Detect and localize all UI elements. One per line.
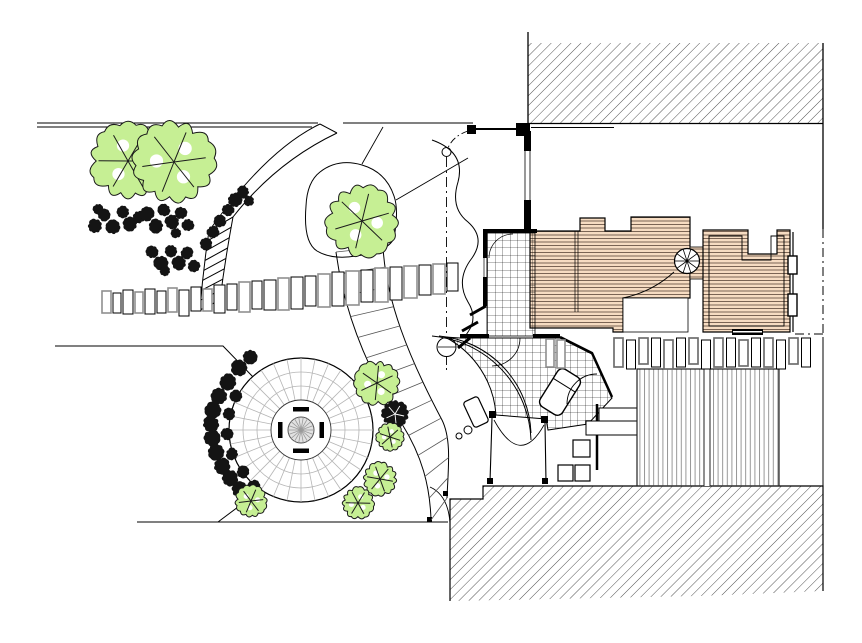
paver	[802, 338, 811, 367]
shrub	[188, 260, 201, 273]
shrub	[165, 245, 177, 257]
garden-pot	[464, 426, 472, 434]
garden-pot	[456, 433, 462, 439]
north-neighbor-building-hatch	[528, 32, 823, 229]
south-neighbor-building-hatch	[450, 486, 823, 601]
flagstone	[419, 265, 431, 295]
shrub	[203, 430, 220, 447]
flagstone	[227, 284, 237, 310]
shrub	[149, 218, 163, 233]
paver	[557, 340, 565, 368]
flagstone	[447, 263, 458, 291]
shrub	[182, 219, 195, 231]
patio-bench	[293, 449, 309, 454]
planter-box	[558, 465, 573, 481]
flagstone	[168, 288, 177, 312]
flagstone	[390, 267, 402, 300]
shrub	[117, 206, 130, 219]
flagstone	[361, 270, 373, 302]
paver	[677, 338, 686, 367]
site-plan-drawing	[0, 0, 862, 643]
gate-swing-arc	[448, 131, 468, 148]
circular-patio	[229, 358, 373, 502]
shrub	[157, 204, 170, 217]
annex-window	[788, 256, 797, 274]
flagstone	[332, 272, 344, 306]
annex-window	[788, 294, 797, 316]
paver	[714, 338, 723, 367]
paver	[727, 338, 736, 367]
door-swing-arc	[494, 420, 544, 445]
flagstone	[239, 282, 250, 312]
planter-box	[575, 465, 590, 481]
flagstone	[433, 264, 445, 294]
paver	[652, 338, 661, 367]
spiral-stair	[675, 249, 700, 274]
flagstone	[123, 290, 133, 314]
tree-green	[325, 185, 399, 258]
shrub	[244, 196, 254, 206]
flagstone	[113, 293, 121, 313]
paver	[546, 339, 554, 367]
shrub	[88, 219, 102, 233]
garden-gate	[448, 123, 530, 148]
flagstone	[102, 291, 111, 313]
flagstone	[252, 281, 262, 309]
patio-bench	[320, 422, 325, 438]
patio-bench	[293, 407, 309, 412]
entry-bed-edge	[432, 140, 478, 338]
shrub	[223, 408, 235, 421]
flagstone	[179, 290, 189, 316]
flagstone	[346, 271, 359, 305]
planter-box	[573, 440, 590, 457]
patio-table	[288, 417, 314, 443]
tree-green	[376, 423, 404, 452]
paver	[739, 340, 748, 366]
house-west-wall	[524, 131, 531, 233]
flagstone	[404, 266, 417, 298]
roof-courtyard-cutout	[623, 298, 688, 332]
shrub	[171, 228, 182, 238]
flagstone	[135, 292, 143, 313]
shrub	[175, 207, 188, 219]
flagstone	[191, 287, 201, 311]
flagstone	[278, 278, 289, 310]
flagstone	[203, 289, 212, 311]
flagstone	[157, 291, 166, 313]
timber-deck	[637, 369, 779, 486]
shrub	[219, 373, 236, 390]
shrub	[214, 215, 227, 228]
annex-roof	[703, 230, 797, 335]
paver	[664, 340, 673, 369]
flagstone	[305, 276, 316, 306]
side-passage	[487, 411, 548, 484]
paver	[752, 338, 761, 367]
shrub	[146, 246, 159, 259]
paver	[777, 340, 786, 369]
paver	[614, 338, 623, 367]
flagstone	[214, 285, 225, 313]
main-house-roof	[530, 217, 703, 332]
paver	[689, 338, 698, 364]
paver	[764, 338, 773, 367]
paver	[702, 340, 711, 369]
flagstone	[375, 268, 388, 302]
paver	[627, 340, 636, 369]
shrub	[106, 219, 121, 234]
small-chair	[463, 396, 489, 428]
flagstone	[318, 274, 330, 307]
flagstone	[291, 277, 303, 309]
stepping-stone-row	[102, 263, 458, 316]
site-plan-page	[0, 0, 862, 643]
paver	[789, 338, 798, 364]
patio-bench	[278, 422, 283, 438]
flagstone	[264, 280, 276, 310]
paver	[639, 338, 648, 364]
flagstone	[145, 289, 155, 314]
